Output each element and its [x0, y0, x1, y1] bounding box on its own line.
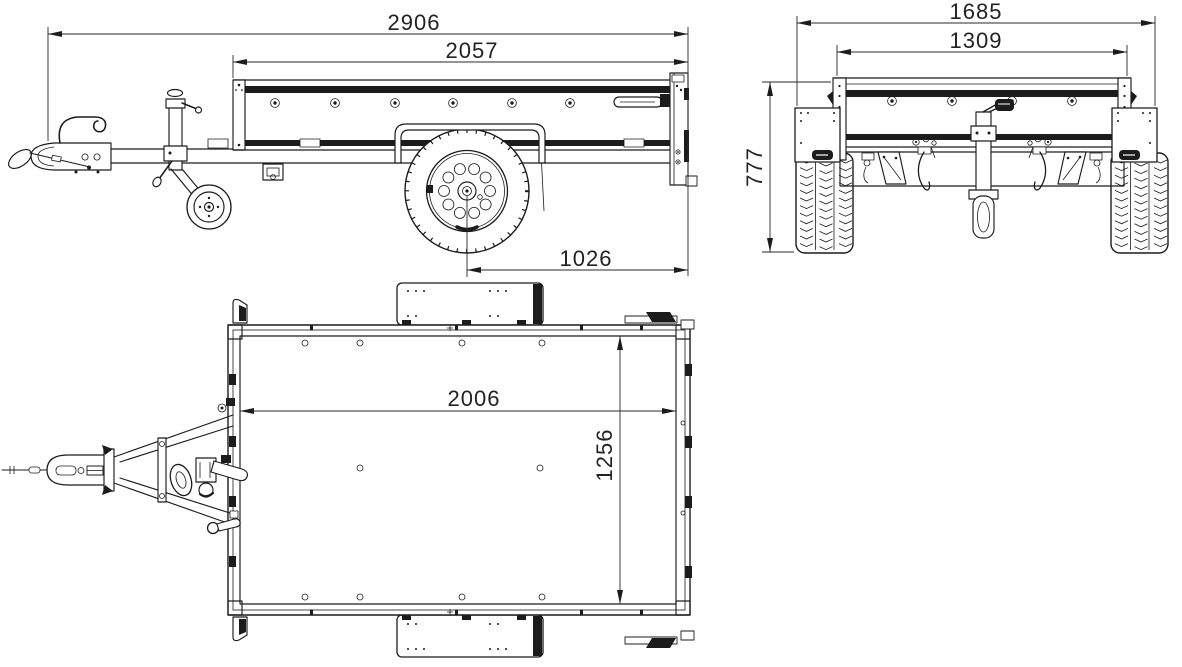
dimension-side-box-length: 2057 [233, 38, 688, 78]
side-wheel [405, 129, 544, 253]
rear-fender-right [1112, 108, 1157, 162]
drawing-canvas: 2906 2057 1026 [0, 0, 1182, 667]
top-front-corner-fin-lower [233, 617, 247, 641]
rear-wheel-right [1111, 153, 1168, 253]
top-coupling [47, 445, 114, 495]
dim-label-axle-to-rear: 1026 [560, 246, 613, 271]
dim-label-overall-length: 2906 [388, 10, 441, 35]
trailer-technical-drawing: 2906 2057 1026 [0, 0, 1182, 667]
top-rear-latch-lower [625, 631, 694, 648]
top-drawbar [2, 398, 247, 534]
dim-label-box-inner-width: 1309 [950, 28, 1003, 53]
rear-jockey-wheel [969, 99, 1014, 238]
top-front-corner-fin-upper [233, 299, 247, 323]
rear-fender-left [795, 108, 840, 162]
top-fender-lower [397, 614, 543, 657]
side-view: 2906 2057 1026 [5, 10, 697, 277]
top-view: 2006 1256 [2, 283, 694, 657]
rear-tiedown-right [1028, 136, 1102, 190]
dim-label-box-length: 2057 [446, 38, 499, 63]
rear-view: 1685 1309 777 [742, 0, 1168, 253]
side-jockey-wheel [151, 90, 231, 230]
rear-tiedown-left [862, 136, 936, 190]
top-safety-cable [2, 466, 47, 474]
dimension-rear-box-inner-width: 1309 [837, 28, 1127, 76]
top-fender-upper [397, 283, 543, 326]
dim-label-overall-width: 1685 [950, 0, 1003, 24]
dim-label-floor-length: 2006 [448, 386, 501, 411]
top-bed-box [228, 325, 692, 615]
coupling-handle [59, 117, 105, 143]
dim-label-height: 777 [742, 147, 767, 187]
dim-label-floor-width: 1256 [592, 429, 617, 482]
rear-wheel-left [796, 153, 853, 253]
side-rear-panel [670, 73, 697, 186]
